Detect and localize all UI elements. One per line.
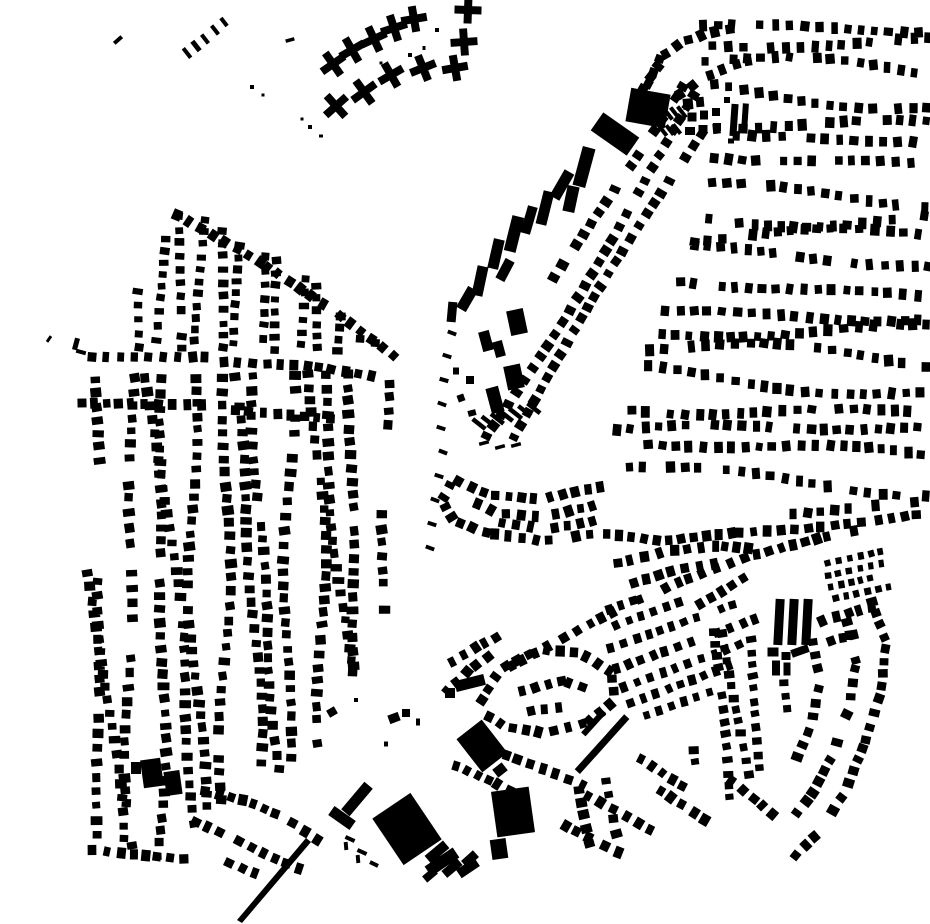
residential-field-houses	[82, 19, 930, 860]
building-footprint-map	[0, 0, 930, 924]
figure-ground-map	[0, 0, 930, 924]
large-buildings	[131, 0, 813, 923]
